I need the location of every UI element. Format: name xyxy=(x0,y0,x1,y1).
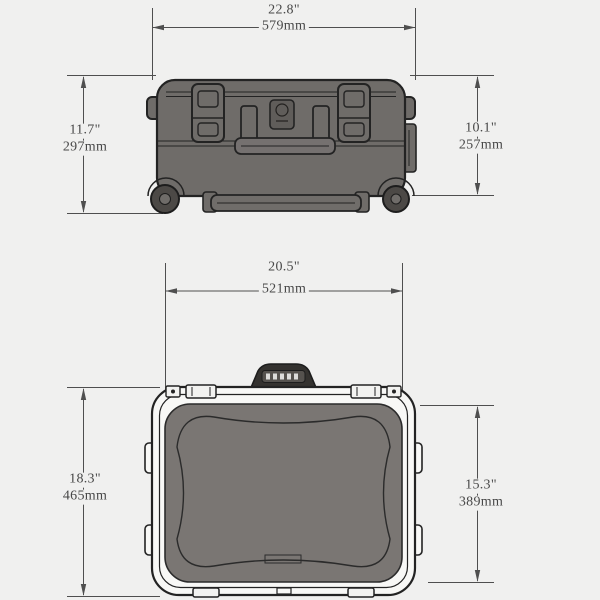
case-top-drawing xyxy=(145,364,422,597)
arrowhead xyxy=(81,584,86,596)
front-pull-bar xyxy=(203,192,369,212)
top-depth-overall-mm-label: 465mm xyxy=(60,490,110,505)
arrowhead xyxy=(81,388,86,400)
case-technical-drawing xyxy=(0,0,600,600)
front-height-overall-inches-label: 11.7" xyxy=(66,124,103,139)
front-height-overall-mm-label: 297mm xyxy=(60,141,110,156)
front-wheel-right xyxy=(383,186,409,212)
arrowhead xyxy=(475,183,480,195)
arrowhead xyxy=(391,288,403,293)
top-width-mm-label: 521mm xyxy=(259,283,309,298)
front-width-mm-label: 579mm xyxy=(259,20,309,35)
arrowhead xyxy=(153,25,165,30)
arrowhead xyxy=(166,288,178,293)
top-depth-overall-inches-label: 18.3" xyxy=(66,473,104,488)
front-wheel-left xyxy=(151,185,179,213)
arrowhead xyxy=(404,25,416,30)
front-height-body-mm-label: 257mm xyxy=(456,139,506,154)
arrowhead xyxy=(81,76,86,88)
arrowhead xyxy=(475,570,480,582)
front-width-inches-label: 22.8" xyxy=(265,4,303,19)
top-depth-body-inches-label: 15.3" xyxy=(462,479,500,494)
arrowhead xyxy=(81,201,86,213)
arrowhead xyxy=(475,406,480,418)
front-logo-plate xyxy=(270,100,294,129)
front-latch-left xyxy=(192,84,224,142)
front-latch-right xyxy=(338,84,370,142)
top-width-inches-label: 20.5" xyxy=(265,261,303,276)
case-front-drawing xyxy=(147,80,416,213)
arrowhead xyxy=(475,76,480,88)
top-depth-body-mm-label: 389mm xyxy=(456,496,506,511)
front-height-body-inches-label: 10.1" xyxy=(462,122,500,137)
dimension-diagram: 22.8" 579mm 11.7" 297mm 10.1" 257mm 20.5… xyxy=(0,0,600,600)
